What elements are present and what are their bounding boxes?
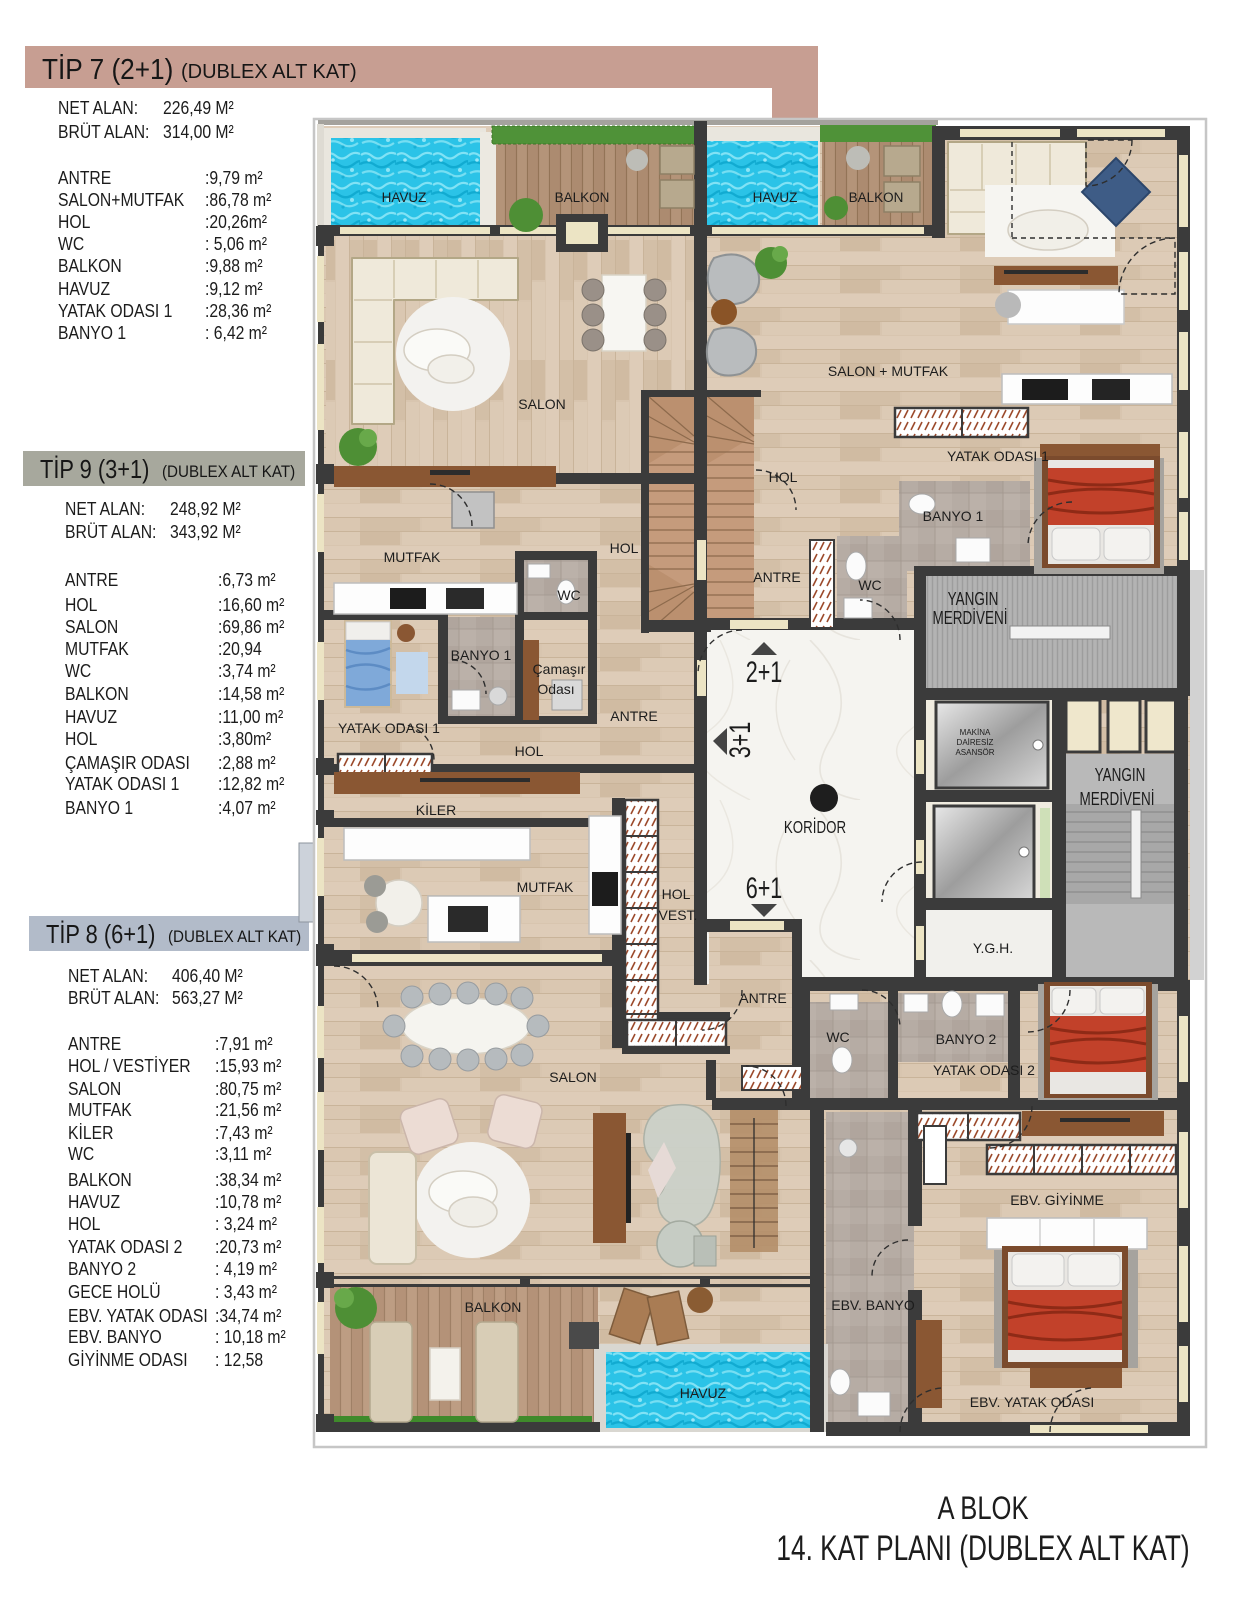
svg-text:BANYO 1: BANYO 1	[65, 797, 133, 819]
svg-text:ANTRE: ANTRE	[65, 569, 118, 591]
svg-text::9,88 m²: :9,88 m²	[205, 255, 263, 277]
svg-text:SALON: SALON	[549, 1069, 596, 1085]
svg-text:: 5,06 m²: : 5,06 m²	[205, 233, 267, 255]
svg-text:HAVUZ: HAVUZ	[753, 190, 798, 205]
svg-text:BRÜT ALAN:: BRÜT ALAN:	[65, 521, 156, 543]
svg-text:343,92 M²: 343,92 M²	[170, 521, 241, 543]
svg-text:GECE HOLÜ: GECE HOLÜ	[68, 1281, 161, 1303]
svg-text:WC: WC	[858, 577, 881, 593]
svg-text:BALKON: BALKON	[849, 190, 904, 205]
svg-text:BANYO 1: BANYO 1	[923, 508, 984, 524]
svg-text:HAVUZ: HAVUZ	[68, 1191, 120, 1213]
svg-text::28,36 m²: :28,36 m²	[205, 300, 272, 322]
svg-text:(DUBLEX ALT KAT): (DUBLEX ALT KAT)	[181, 61, 357, 83]
svg-text:YATAK ODASI 1: YATAK ODASI 1	[65, 773, 179, 795]
svg-text:ASANSÖR: ASANSÖR	[955, 748, 994, 757]
svg-text:YATAK ODASI 1: YATAK ODASI 1	[947, 448, 1049, 464]
svg-text:KİLER: KİLER	[416, 801, 456, 818]
svg-text:HAVUZ: HAVUZ	[382, 190, 427, 205]
svg-text:WC: WC	[65, 660, 91, 682]
svg-text:: 3,24 m²: : 3,24 m²	[215, 1213, 277, 1235]
svg-text:Çamaşır: Çamaşır	[533, 661, 586, 677]
svg-text:: 6,42 m²: : 6,42 m²	[205, 322, 267, 344]
svg-text:BALKON: BALKON	[465, 1299, 522, 1315]
svg-text:BRÜT ALAN:: BRÜT ALAN:	[58, 121, 149, 143]
svg-text:: 10,18 m²: : 10,18 m²	[215, 1326, 286, 1348]
svg-text:WC: WC	[557, 587, 580, 603]
svg-text:314,00 M²: 314,00 M²	[163, 121, 234, 143]
svg-text:EBV. YATAK ODASI: EBV. YATAK ODASI	[970, 1394, 1095, 1410]
svg-text:(DUBLEX ALT KAT): (DUBLEX ALT KAT)	[168, 928, 301, 946]
svg-text::20,94: :20,94	[218, 638, 262, 660]
svg-text::12,82 m²: :12,82 m²	[218, 773, 285, 795]
svg-text:TİP 7 (2+1): TİP 7 (2+1)	[42, 53, 173, 85]
svg-text::86,78 m²: :86,78 m²	[205, 189, 272, 211]
svg-text::10,78 m²: :10,78 m²	[215, 1191, 282, 1213]
svg-text:6+1: 6+1	[746, 870, 783, 904]
svg-text:BALKON: BALKON	[68, 1169, 132, 1191]
svg-text::3,80m²: :3,80m²	[218, 728, 272, 750]
svg-text::69,86 m²: :69,86 m²	[218, 616, 285, 638]
svg-text:: 12,58: : 12,58	[215, 1349, 263, 1371]
svg-text:14. KAT PLANI (DUBLEX ALT KAT): 14. KAT PLANI (DUBLEX ALT KAT)	[776, 1528, 1189, 1568]
svg-text:BANYO 1: BANYO 1	[451, 647, 512, 663]
svg-text:YANGIN: YANGIN	[948, 589, 999, 610]
svg-text:BANYO 1: BANYO 1	[58, 322, 126, 344]
svg-text:ANTRE: ANTRE	[68, 1033, 121, 1055]
svg-text:WC: WC	[826, 1029, 849, 1045]
svg-text:BANYO 2: BANYO 2	[936, 1031, 997, 1047]
svg-text:WC: WC	[58, 233, 84, 255]
svg-text:EBV. GİYİNME: EBV. GİYİNME	[1010, 1191, 1104, 1208]
svg-text:NET ALAN:: NET ALAN:	[68, 965, 148, 987]
svg-text:DAİRESİZ: DAİRESİZ	[957, 738, 994, 747]
svg-text::4,07 m²: :4,07 m²	[218, 797, 276, 819]
svg-text:SALON: SALON	[68, 1078, 121, 1100]
svg-text:MUTFAK: MUTFAK	[65, 638, 129, 660]
svg-text:TİP 8 (6+1): TİP 8 (6+1)	[46, 920, 155, 949]
svg-text:HOL: HOL	[58, 211, 90, 233]
svg-text::34,74 m²: :34,74 m²	[215, 1305, 282, 1327]
svg-text:: 4,19 m²: : 4,19 m²	[215, 1258, 277, 1280]
svg-text:A BLOK: A BLOK	[937, 1491, 1028, 1526]
svg-text:MUTFAK: MUTFAK	[384, 549, 441, 565]
svg-text:MERDİVENİ: MERDİVENİ	[932, 607, 1007, 629]
svg-text:EBV. BANYO: EBV. BANYO	[68, 1326, 162, 1348]
svg-text:MERDİVENİ: MERDİVENİ	[1079, 788, 1154, 810]
svg-text:HAVUZ: HAVUZ	[680, 1385, 727, 1401]
svg-text:HOL: HOL	[65, 594, 97, 616]
svg-text:BALKON: BALKON	[555, 190, 610, 205]
svg-text:EBV. BANYO: EBV. BANYO	[831, 1297, 915, 1313]
svg-text:HAVUZ: HAVUZ	[58, 278, 110, 300]
svg-text:BRÜT ALAN:: BRÜT ALAN:	[68, 987, 159, 1009]
svg-text:SALON + MUTFAK: SALON + MUTFAK	[828, 363, 949, 379]
svg-text:GİYİNME ODASI: GİYİNME ODASI	[68, 1349, 188, 1371]
svg-text:Y.G.H.: Y.G.H.	[973, 940, 1013, 956]
svg-text::20,26m²: :20,26m²	[205, 211, 267, 233]
svg-text:HOL: HOL	[515, 743, 544, 759]
svg-text:563,27 M²: 563,27 M²	[172, 987, 243, 1009]
svg-text:(DUBLEX ALT KAT): (DUBLEX ALT KAT)	[162, 463, 295, 481]
svg-text:KİLER: KİLER	[68, 1122, 113, 1144]
svg-text::16,60 m²: :16,60 m²	[218, 594, 285, 616]
svg-text::20,73 m²: :20,73 m²	[215, 1236, 282, 1258]
svg-text:HAVUZ: HAVUZ	[65, 706, 117, 728]
svg-text:: 3,43 m²: : 3,43 m²	[215, 1281, 277, 1303]
svg-text:NET ALAN:: NET ALAN:	[65, 498, 145, 520]
svg-text:HOL: HOL	[610, 540, 639, 556]
svg-text:HOL: HOL	[662, 886, 691, 902]
svg-text:3+1: 3+1	[722, 722, 756, 759]
svg-text:EBV. YATAK ODASI: EBV. YATAK ODASI	[68, 1305, 208, 1327]
svg-text:MUTFAK: MUTFAK	[517, 879, 574, 895]
svg-text:BALKON: BALKON	[65, 683, 129, 705]
svg-text:HOL: HOL	[68, 1213, 100, 1235]
svg-text:WC: WC	[68, 1143, 94, 1165]
svg-text:KORİDOR: KORİDOR	[784, 816, 846, 838]
svg-text::11,00 m²: :11,00 m²	[218, 706, 283, 728]
svg-text::7,43 m²: :7,43 m²	[215, 1122, 273, 1144]
svg-text:VEST.: VEST.	[659, 907, 698, 923]
svg-text:SALON: SALON	[518, 396, 565, 412]
svg-text:248,92 M²: 248,92 M²	[170, 498, 241, 520]
svg-text:ANTRE: ANTRE	[739, 990, 786, 1006]
svg-text:YANGIN: YANGIN	[1095, 765, 1146, 786]
svg-text:NET ALAN:: NET ALAN:	[58, 97, 138, 119]
svg-text::38,34 m²: :38,34 m²	[215, 1169, 282, 1191]
svg-text:MUTFAK: MUTFAK	[68, 1099, 132, 1121]
svg-text:HOL: HOL	[65, 728, 97, 750]
svg-text:TİP 9 (3+1): TİP 9 (3+1)	[40, 455, 149, 484]
svg-text:YATAK ODASI 2: YATAK ODASI 2	[68, 1236, 182, 1258]
svg-text:2+1: 2+1	[746, 654, 783, 688]
svg-text:HOL: HOL	[769, 469, 798, 485]
svg-text::15,93 m²: :15,93 m²	[215, 1055, 282, 1077]
svg-text::2,88 m²: :2,88 m²	[218, 752, 276, 774]
svg-text::3,11 m²: :3,11 m²	[215, 1143, 272, 1165]
svg-text:SALON+MUTFAK: SALON+MUTFAK	[58, 189, 185, 211]
svg-text:YATAK ODASI 2: YATAK ODASI 2	[933, 1062, 1035, 1078]
svg-text:BALKON: BALKON	[58, 255, 122, 277]
svg-text::9,79 m²: :9,79 m²	[205, 167, 263, 189]
svg-text:YATAK ODASI 1: YATAK ODASI 1	[338, 720, 440, 736]
svg-text::21,56 m²: :21,56 m²	[215, 1099, 282, 1121]
svg-text::6,73 m²: :6,73 m²	[218, 569, 276, 591]
svg-text:HOL / VESTİYER: HOL / VESTİYER	[68, 1055, 191, 1077]
svg-text:ANTRE: ANTRE	[610, 708, 657, 724]
svg-text::3,74 m²: :3,74 m²	[218, 660, 276, 682]
svg-text::14,58 m²: :14,58 m²	[218, 683, 285, 705]
svg-text:406,40 M²: 406,40 M²	[172, 965, 243, 987]
svg-text:ANTRE: ANTRE	[58, 167, 111, 189]
svg-text:Odası: Odası	[537, 681, 574, 697]
svg-text:ÇAMAŞIR ODASI: ÇAMAŞIR ODASI	[65, 752, 190, 774]
svg-text:SALON: SALON	[65, 616, 118, 638]
svg-text::80,75 m²: :80,75 m²	[215, 1078, 282, 1100]
svg-text:ANTRE: ANTRE	[753, 569, 800, 585]
svg-text::9,12 m²: :9,12 m²	[205, 278, 263, 300]
svg-text:BANYO 2: BANYO 2	[68, 1258, 136, 1280]
svg-text:YATAK ODASI 1: YATAK ODASI 1	[58, 300, 172, 322]
svg-text::7,91 m²: :7,91 m²	[215, 1033, 273, 1055]
svg-text:MAKİNA: MAKİNA	[960, 728, 991, 737]
svg-text:226,49 M²: 226,49 M²	[163, 97, 234, 119]
